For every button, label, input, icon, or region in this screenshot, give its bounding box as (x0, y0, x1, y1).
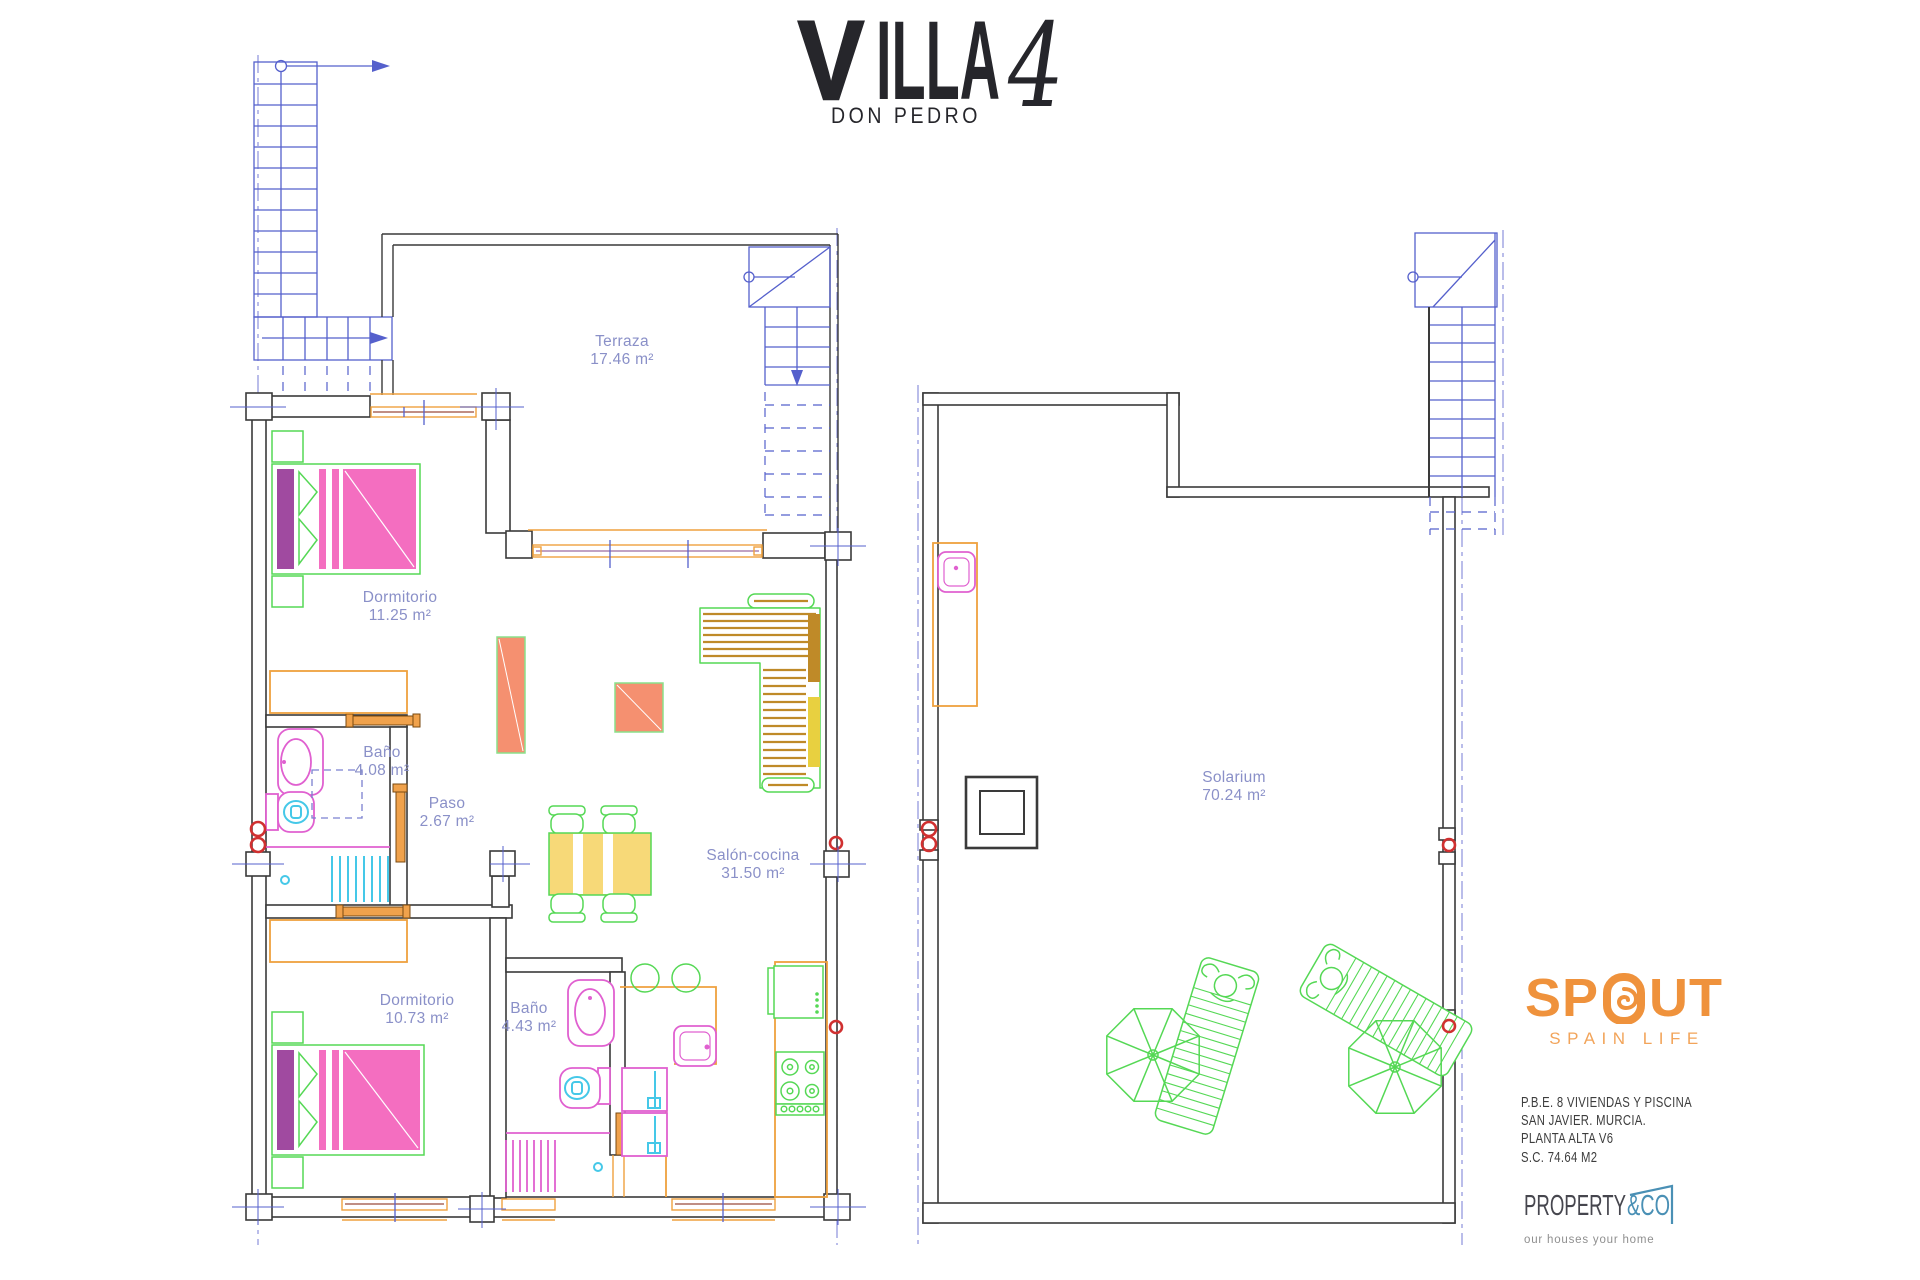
spout-text-right: UT (1649, 972, 1723, 1024)
floor-plan-sheet: Terraza 17.46 m² Dormitorio 11.25 m² Bañ… (0, 0, 1920, 1280)
property-co-logo: PROPERTY &CO our houses your home (1524, 1184, 1684, 1246)
stairs-terrace-icon (744, 247, 830, 515)
coffee-table-icon (615, 683, 663, 732)
property-co-wordmark: PROPERTY &CO (1524, 1184, 1684, 1228)
room-label-dormitorio1: Dormitorio (363, 589, 437, 606)
skylight-icon (966, 777, 1037, 848)
stairs-top-left-icon (254, 60, 392, 393)
project-line: P.B.E. 8 VIVIENDAS Y PISCINA (1521, 1094, 1692, 1112)
spout-logo: SP UT SPAIN LIFE (1524, 972, 1724, 1049)
villa-logo: V ILLA 4 DON PEDRO (798, 0, 1064, 134)
spout-text-left: SP (1525, 972, 1599, 1024)
project-line: SAN JAVIER. MURCIA. (1521, 1112, 1692, 1130)
bedroom1-bed-icon (272, 431, 420, 607)
svg-text:2.67 m²: 2.67 m² (420, 813, 475, 830)
room-label-salon: Salón-cocina (706, 847, 799, 864)
svg-text:4.08 m²: 4.08 m² (355, 762, 410, 779)
kitchen-sink-icon (674, 1026, 716, 1066)
room-label-bano2: Baño (510, 1000, 547, 1017)
dining-table-icon (549, 806, 651, 922)
room-label-terraza: Terraza (595, 333, 649, 350)
bedroom1-wardrobe-icon (270, 671, 407, 713)
svg-text:17.46 m²: 17.46 m² (590, 351, 654, 368)
project-info: P.B.E. 8 VIVIENDAS Y PISCINA SAN JAVIER.… (1521, 1094, 1692, 1167)
villa-number: 4 (1007, 0, 1064, 134)
spout-tagline: SPAIN LIFE (1524, 1029, 1724, 1049)
sun-lounger-icon (1153, 956, 1260, 1136)
kitchen-icons (620, 962, 827, 1197)
room-label-paso: Paso (429, 795, 466, 812)
floor-plan-drawing: Terraza 17.46 m² Dormitorio 11.25 m² Bañ… (0, 0, 1920, 1280)
svg-text:4.43 m²: 4.43 m² (502, 1018, 557, 1035)
svg-text:70.24 m²: 70.24 m² (1202, 787, 1266, 804)
terrace-outline (382, 234, 838, 532)
svg-text:31.50 m²: 31.50 m² (721, 865, 785, 882)
outdoor-sink-icon (933, 543, 977, 706)
project-line: PLANTA ALTA V6 (1521, 1130, 1692, 1148)
stove-icon (776, 1052, 824, 1115)
svg-text:10.73 m²: 10.73 m² (385, 1010, 449, 1027)
svg-text:PROPERTY: PROPERTY (1524, 1190, 1626, 1222)
sofa-icon (700, 594, 820, 792)
room-label-dormitorio2: Dormitorio (380, 992, 454, 1009)
bedroom2-bed-icon (272, 1012, 424, 1188)
fridge-icon (768, 966, 823, 1018)
property-co-tagline: our houses your home (1524, 1234, 1684, 1246)
room-label-solarium: Solarium (1202, 769, 1266, 786)
room-label-bano1: Baño (363, 744, 400, 761)
armchair-icon (497, 637, 525, 753)
bedroom2-wardrobe-icon (270, 920, 407, 962)
spout-swirl-o-icon (1602, 972, 1646, 1024)
washer-icon (622, 1068, 667, 1156)
svg-text:&CO: &CO (1627, 1190, 1670, 1222)
project-line: S.C. 74.64 M2 (1521, 1149, 1692, 1167)
villa-subtitle: DON PEDRO (831, 103, 981, 128)
svg-text:11.25 m²: 11.25 m² (369, 607, 431, 624)
